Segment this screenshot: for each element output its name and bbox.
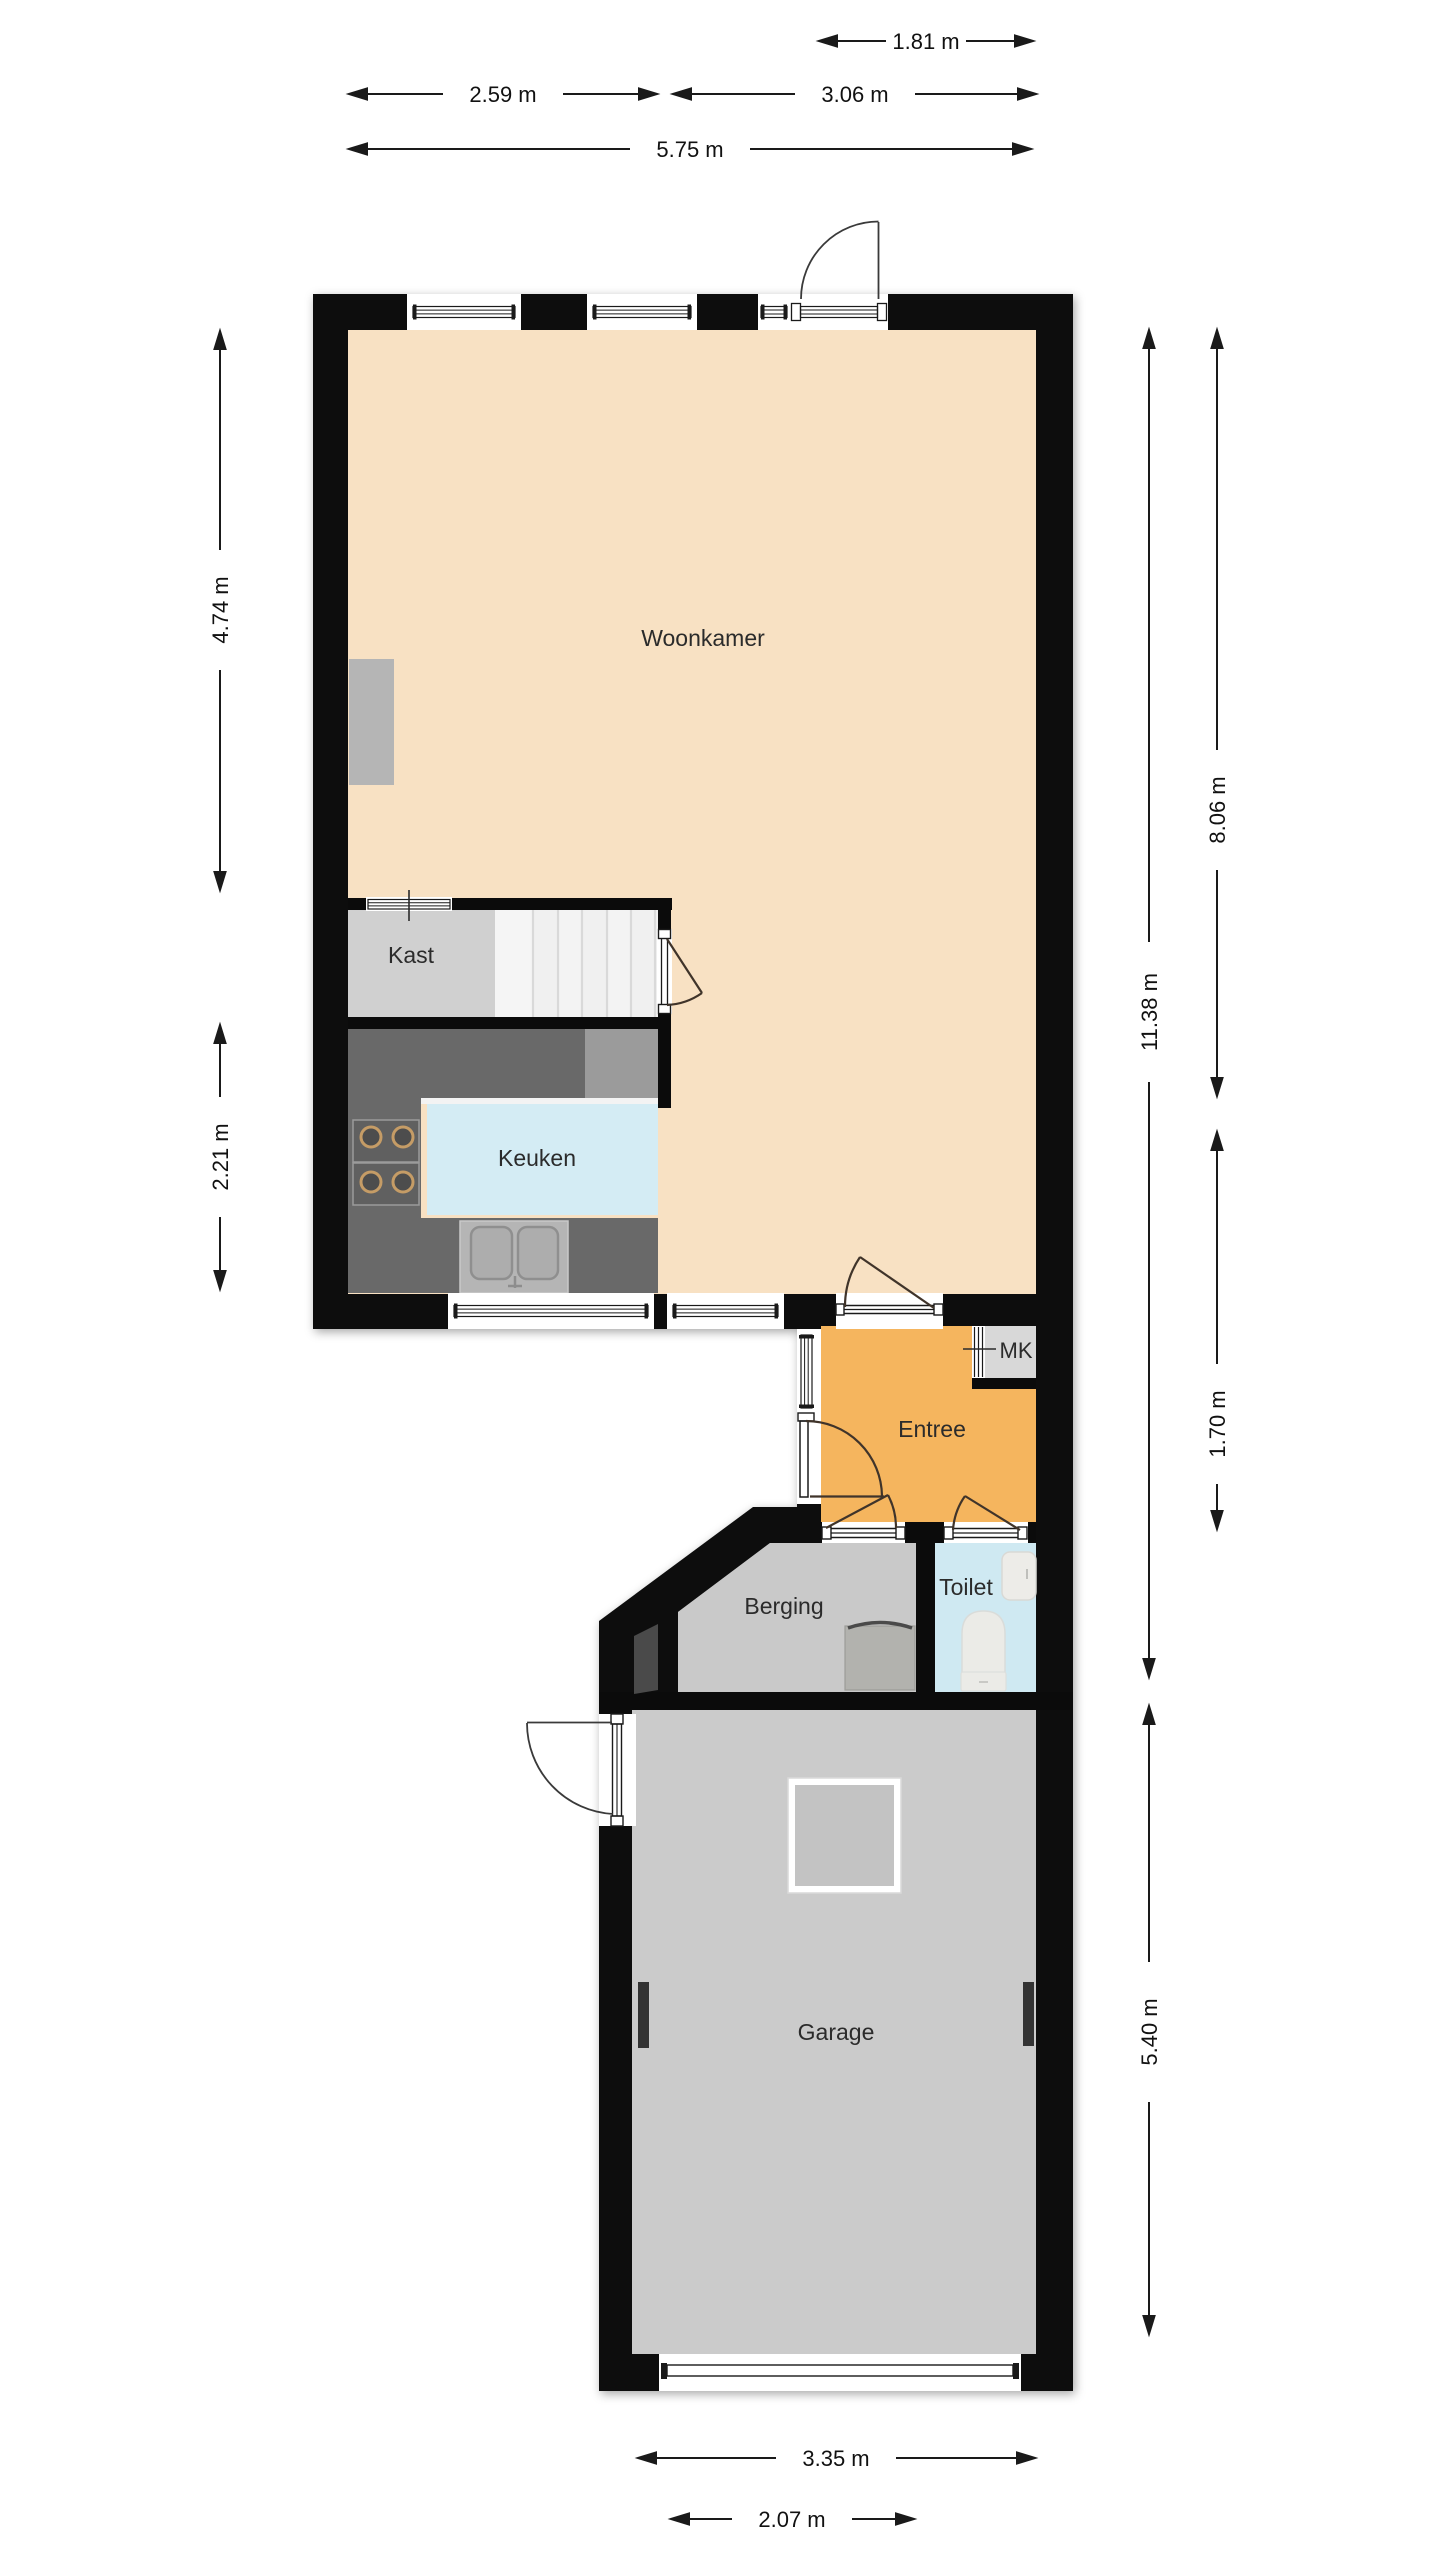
svg-text:Kast: Kast xyxy=(388,942,435,968)
svg-text:Keuken: Keuken xyxy=(498,1145,576,1171)
svg-text:5.40 m: 5.40 m xyxy=(1137,1998,1162,2065)
svg-text:11.38 m: 11.38 m xyxy=(1137,973,1162,1051)
svg-text:Garage: Garage xyxy=(798,2019,875,2045)
svg-text:3.06 m: 3.06 m xyxy=(821,82,888,107)
svg-text:MK: MK xyxy=(1000,1338,1033,1363)
svg-text:4.74 m: 4.74 m xyxy=(208,576,233,643)
svg-text:Entree: Entree xyxy=(898,1416,966,1442)
svg-text:1.81 m: 1.81 m xyxy=(892,29,959,54)
svg-text:1.70 m: 1.70 m xyxy=(1205,1390,1230,1457)
svg-text:Toilet: Toilet xyxy=(939,1574,993,1600)
svg-text:8.06 m: 8.06 m xyxy=(1205,776,1230,843)
svg-text:Berging: Berging xyxy=(744,1593,823,1619)
svg-text:Woonkamer: Woonkamer xyxy=(641,625,765,651)
svg-text:2.21 m: 2.21 m xyxy=(208,1123,233,1190)
svg-text:2.59 m: 2.59 m xyxy=(469,82,536,107)
svg-text:5.75 m: 5.75 m xyxy=(656,137,723,162)
svg-text:2.07 m: 2.07 m xyxy=(758,2507,825,2532)
svg-text:3.35 m: 3.35 m xyxy=(802,2446,869,2471)
